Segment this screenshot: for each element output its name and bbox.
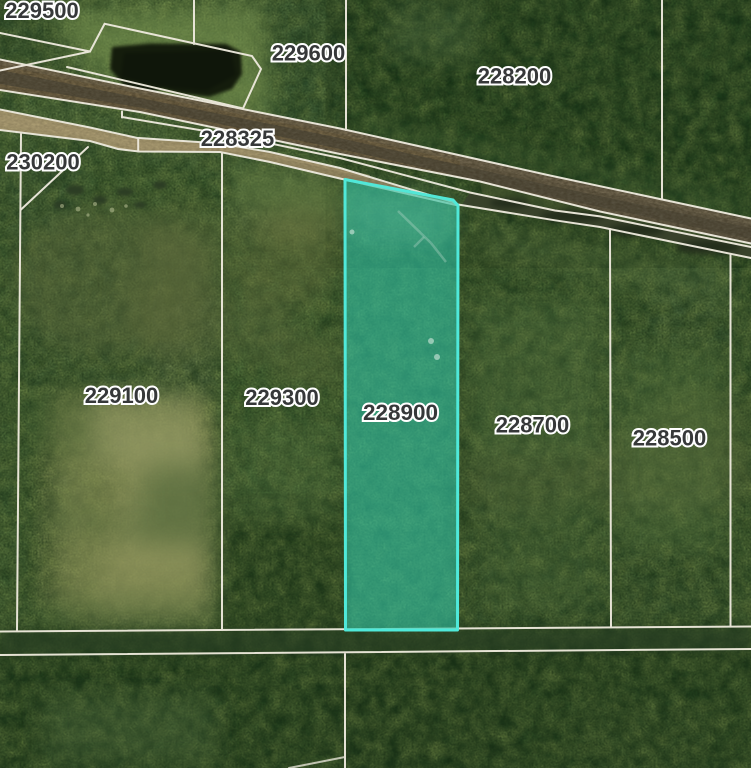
svg-text:228900: 228900 xyxy=(363,400,438,425)
svg-text:229600: 229600 xyxy=(272,41,345,66)
svg-text:229300: 229300 xyxy=(245,385,318,410)
svg-text:228200: 228200 xyxy=(478,64,551,89)
svg-text:230200: 230200 xyxy=(6,150,79,175)
svg-text:228325: 228325 xyxy=(201,126,274,151)
svg-text:229500: 229500 xyxy=(5,0,78,23)
svg-text:228700: 228700 xyxy=(496,413,569,438)
svg-text:228500: 228500 xyxy=(633,426,706,451)
svg-text:229100: 229100 xyxy=(85,383,158,408)
